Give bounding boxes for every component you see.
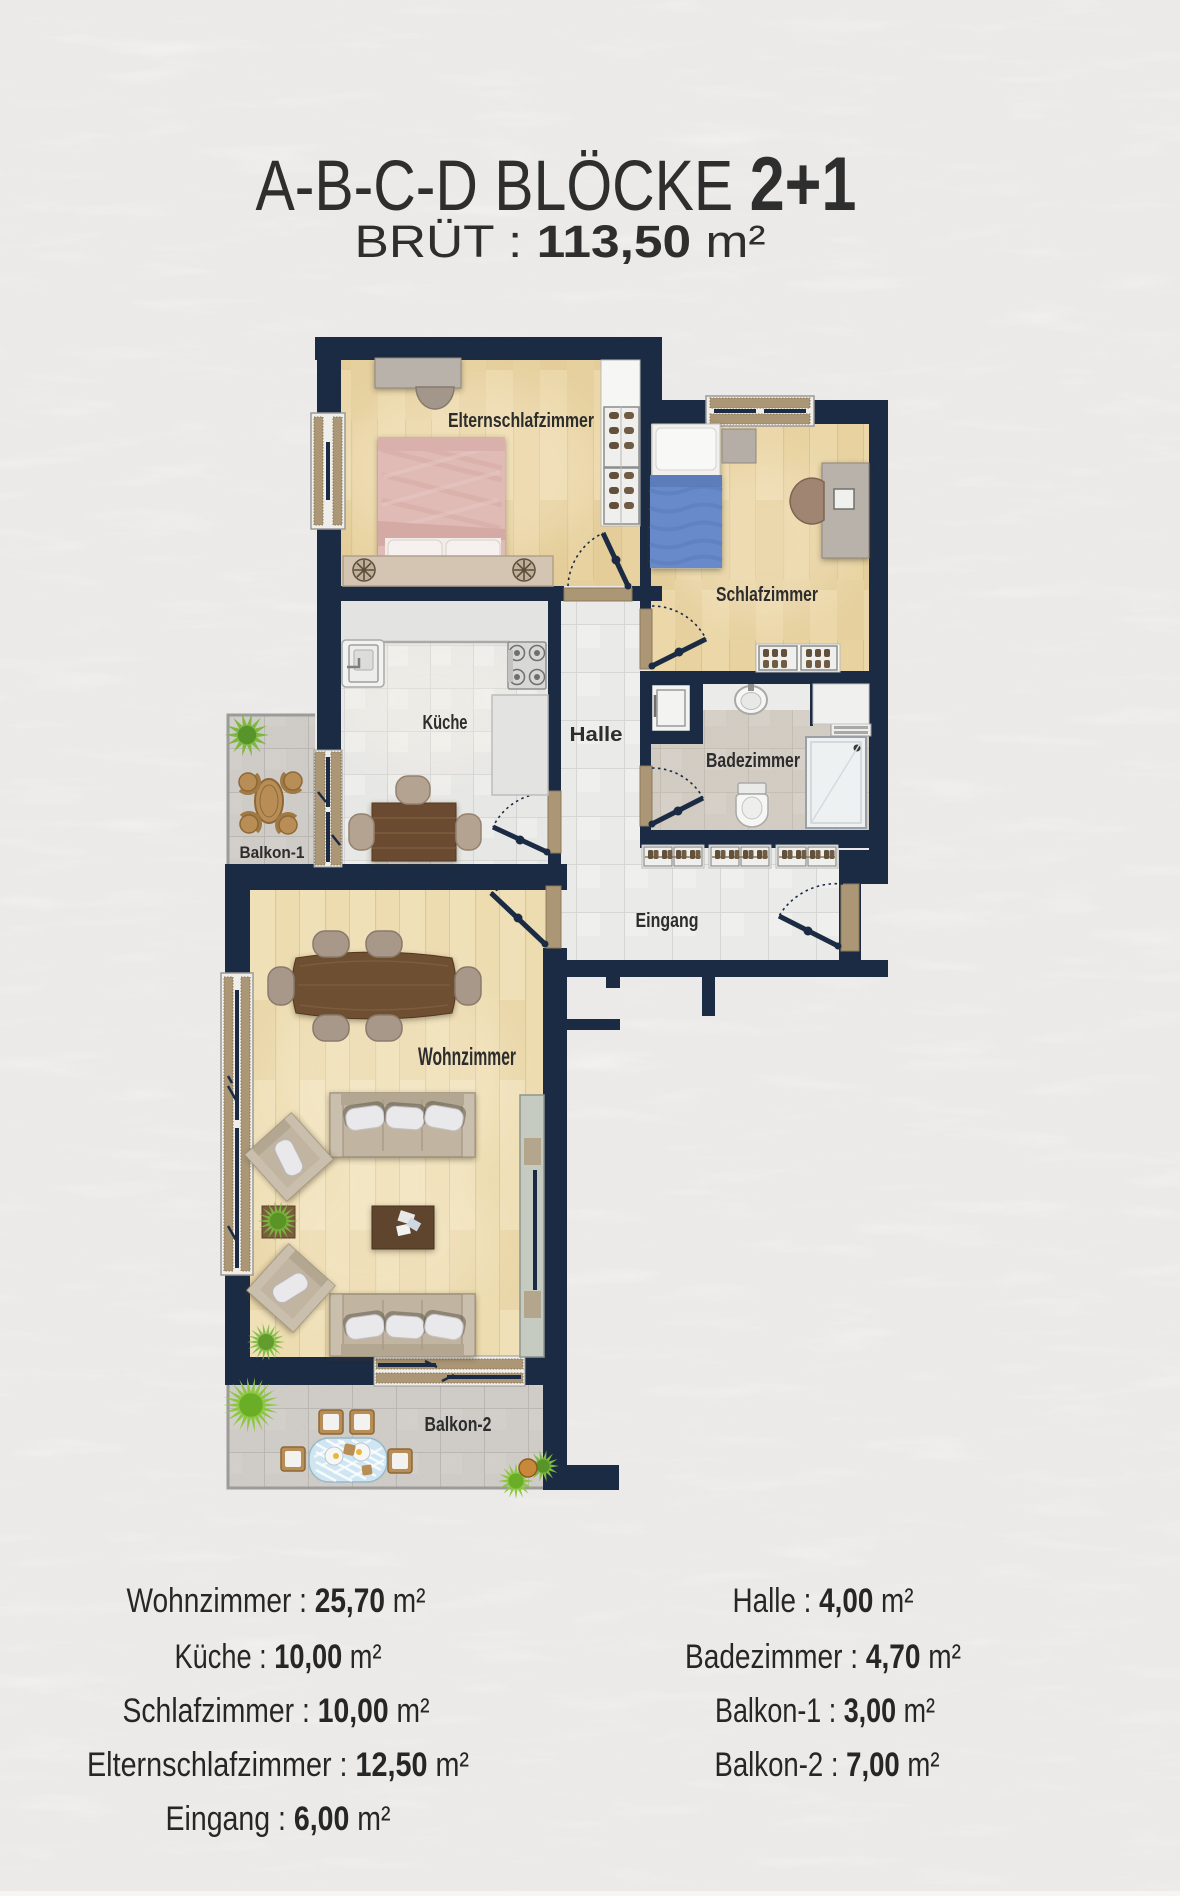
svg-text:Balkon-1 : 3,00 m²: Balkon-1 : 3,00 m² — [715, 1692, 935, 1730]
svg-text:BRÜT : 113,50 m²: BRÜT : 113,50 m² — [355, 216, 766, 267]
svg-text:Badezimmer: Badezimmer — [706, 750, 800, 772]
svg-text:Wohnzimmer: Wohnzimmer — [418, 1043, 516, 1071]
svg-text:Küche : 10,00 m²: Küche : 10,00 m² — [175, 1638, 382, 1676]
svg-text:Schlafzimmer : 10,00 m²: Schlafzimmer : 10,00 m² — [123, 1692, 430, 1730]
svg-text:Halle: Halle — [570, 724, 623, 746]
svg-text:Badezimmer : 4,70 m²: Badezimmer : 4,70 m² — [685, 1638, 961, 1676]
svg-text:Eingang: Eingang — [636, 910, 699, 932]
svg-text:Schlafzimmer: Schlafzimmer — [716, 584, 818, 606]
svg-text:A-B-C-D BLÖCKE 2+1: A-B-C-D BLÖCKE 2+1 — [256, 142, 857, 227]
svg-text:Balkon-1: Balkon-1 — [240, 843, 305, 862]
svg-text:Balkon-2 : 7,00 m²: Balkon-2 : 7,00 m² — [715, 1746, 940, 1784]
svg-text:Wohnzimmer : 25,70 m²: Wohnzimmer : 25,70 m² — [127, 1582, 426, 1620]
svg-text:Eingang : 6,00 m²: Eingang : 6,00 m² — [166, 1800, 391, 1838]
svg-text:Elternschlafzimmer: Elternschlafzimmer — [448, 410, 594, 432]
svg-text:Elternschlafzimmer : 12,50 m²: Elternschlafzimmer : 12,50 m² — [87, 1746, 469, 1784]
svg-text:Balkon-2: Balkon-2 — [425, 1414, 492, 1436]
svg-text:Küche: Küche — [423, 712, 468, 734]
svg-text:Halle : 4,00 m²: Halle : 4,00 m² — [733, 1582, 914, 1620]
